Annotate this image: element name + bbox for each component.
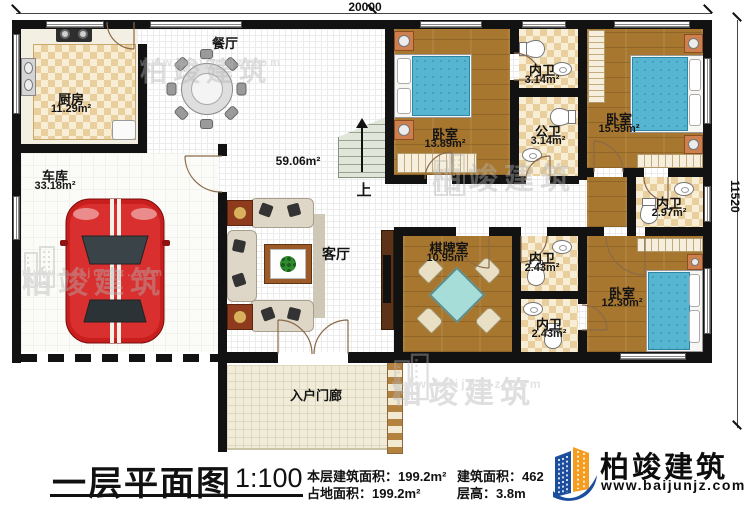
living-label: 客厅: [322, 244, 350, 264]
stairs-label: 上: [356, 179, 371, 200]
plan-title: 一层平面图: [52, 456, 232, 505]
bedroom3-area: 12.30m²: [602, 297, 643, 309]
ensuite3-area: 2.43m²: [525, 262, 560, 274]
area-info-left: 本层建筑面积：199.2m² 占地面积：199.2m²: [307, 468, 446, 502]
watermark-url: www.baijunjz.com: [392, 378, 544, 391]
floor-plan-canvas: 20000 11520 厨房 11.29m² 餐厅 车库 33.18m² 59.…: [0, 0, 750, 508]
floor-area-text: 本层建筑面积：199.2m²: [307, 468, 446, 485]
dimension-height: 11520: [728, 180, 742, 213]
dimension-width: 20000: [330, 0, 400, 14]
watermark-url: www.baijunjz.com: [22, 268, 165, 280]
plan-scale: 1:100: [235, 463, 303, 494]
mahjong-area: 10.95m²: [427, 252, 468, 264]
bedroom2-area: 15.59m²: [599, 123, 640, 135]
gross-area-text: 建筑面积：462: [457, 468, 544, 485]
living-area: 59.06m²: [276, 154, 321, 168]
watermark-text: 柏竣建筑: [432, 154, 576, 198]
door-swings: [0, 0, 750, 508]
dining-label: 餐厅: [212, 33, 238, 52]
garage-area: 33.18m²: [35, 180, 76, 192]
porch-label: 入户门廊: [290, 385, 342, 404]
ensuite1-area: 3.14m²: [525, 74, 560, 86]
bedroom1-area: 13.89m²: [425, 138, 466, 150]
kitchen-area: 11.29m²: [51, 103, 91, 115]
public-bath-area: 3.14m²: [531, 135, 566, 147]
company-logo-url: www.baijunjz.com: [601, 477, 746, 493]
area-info-right: 建筑面积：462 层高：3.8m: [457, 468, 544, 502]
ensuite4-area: 2.43m²: [532, 328, 567, 340]
story-height-text: 层高：3.8m: [457, 485, 544, 502]
ensuite2-area: 2.97m²: [652, 207, 687, 219]
land-area-text: 占地面积：199.2m²: [307, 485, 446, 502]
company-logo-icon: [549, 442, 601, 502]
watermark-url: www.baijunjz.com: [140, 58, 283, 70]
title-underline: [50, 494, 303, 497]
